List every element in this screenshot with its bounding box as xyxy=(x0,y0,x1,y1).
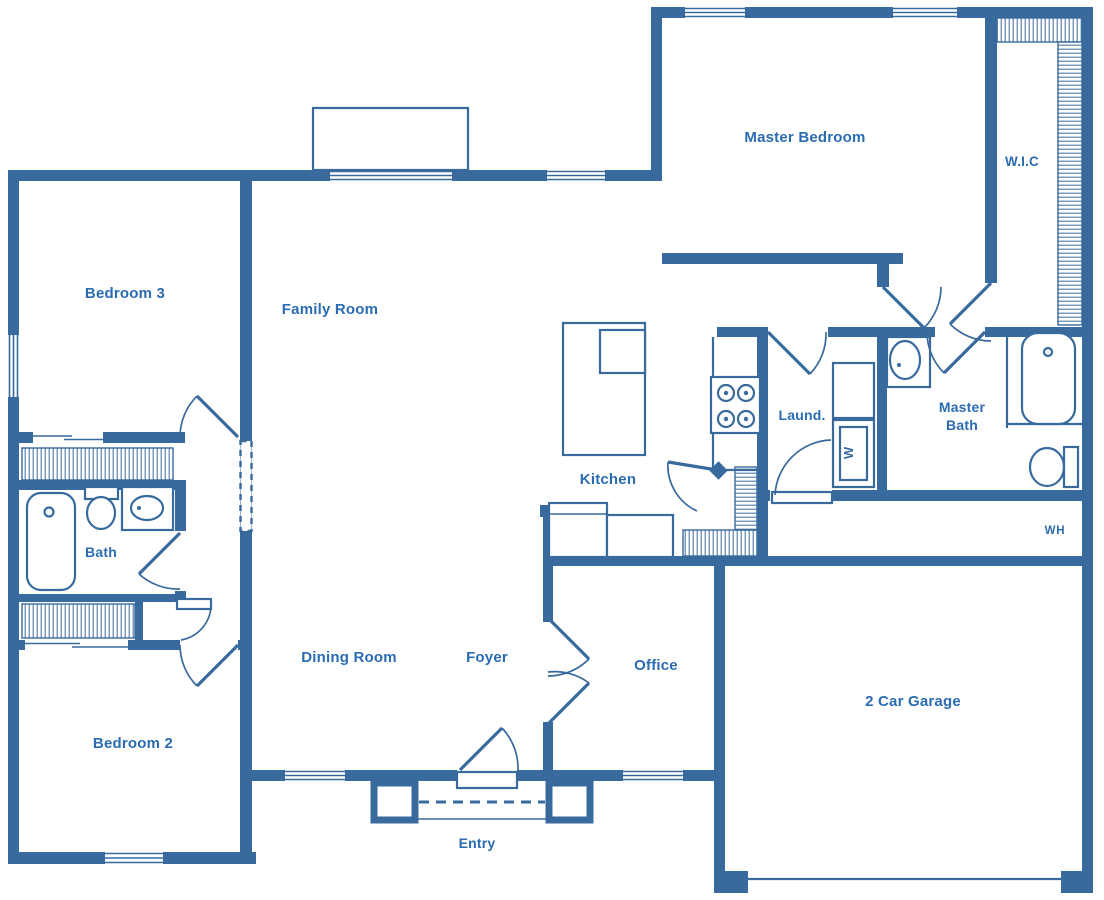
stove xyxy=(711,377,760,433)
bypass-door xyxy=(33,432,103,443)
toilet xyxy=(85,487,118,529)
room-label-foyer: Foyer xyxy=(466,649,508,666)
window xyxy=(547,170,605,181)
counter-cabinet xyxy=(549,503,607,557)
room-label-wh: WH xyxy=(1045,525,1066,537)
hall-closet-door xyxy=(177,599,211,640)
room-label-laundry: Laund. xyxy=(778,407,825,423)
bath-sink xyxy=(122,487,173,530)
laundry-door xyxy=(768,332,826,374)
tub-drain xyxy=(45,508,54,517)
porch-post xyxy=(374,783,415,820)
room-label-bedroom-2: Bedroom 2 xyxy=(93,735,173,752)
cased-opening-dashed xyxy=(241,441,252,531)
patio-bump-out xyxy=(313,108,468,170)
window xyxy=(893,7,957,18)
pantry-shelf-bottom xyxy=(683,530,757,556)
room-label-family-room: Family Room xyxy=(282,301,378,318)
bedroom3-door xyxy=(180,396,238,437)
laundry-garage-door xyxy=(772,440,832,503)
window xyxy=(685,7,745,18)
master-bathtub xyxy=(1022,333,1075,424)
room-label-kitchen: Kitchen xyxy=(580,471,636,488)
floor-plan-page: W xyxy=(0,0,1104,900)
room-label-wic: W.I.C xyxy=(1005,154,1039,169)
tub-drain xyxy=(1044,348,1052,356)
bedroom3-closet-rod xyxy=(22,448,173,480)
window xyxy=(623,770,683,781)
room-label-bath: Bath xyxy=(85,544,117,560)
laundry-fixtures: W xyxy=(833,363,874,487)
linen-closet-rod xyxy=(22,604,135,638)
washer: W xyxy=(833,420,874,487)
master-bath-door xyxy=(927,332,985,373)
master-toilet xyxy=(1030,447,1078,487)
window xyxy=(285,770,345,781)
pantry-shelf-right xyxy=(735,467,757,530)
master-vanity xyxy=(887,337,930,387)
counter-cabinet xyxy=(607,515,673,557)
porch-post xyxy=(549,783,590,820)
kitchen-fixtures xyxy=(549,323,760,557)
island-sink xyxy=(600,330,645,373)
floor-plan: W xyxy=(0,0,1104,900)
bath-door xyxy=(139,533,180,589)
office-french-door xyxy=(548,618,589,724)
washer-label: W xyxy=(841,446,856,459)
master-bedroom-door xyxy=(883,287,941,328)
wic-rod-top xyxy=(997,18,1082,42)
room-label-garage: 2 Car Garage xyxy=(865,693,961,710)
room-label-dining-room: Dining Room xyxy=(301,649,397,666)
bedroom2-door xyxy=(180,645,238,686)
window xyxy=(330,170,452,181)
window xyxy=(8,335,19,397)
room-label-bedroom-3: Bedroom 3 xyxy=(85,285,165,302)
room-label-entry: Entry xyxy=(459,835,496,851)
room-label-master-bedroom: Master Bedroom xyxy=(744,129,865,146)
front-door xyxy=(457,728,518,788)
window xyxy=(105,852,163,864)
bypass-door xyxy=(25,640,128,650)
bath-fixtures xyxy=(27,487,173,590)
dryer xyxy=(833,363,874,418)
room-label-office: Office xyxy=(634,657,678,674)
room-label-master-bath-1: Master xyxy=(939,399,986,415)
wic-rod-right xyxy=(1058,42,1082,325)
room-label-master-bath-2: Bath xyxy=(946,417,978,433)
pantry-door xyxy=(668,462,717,511)
